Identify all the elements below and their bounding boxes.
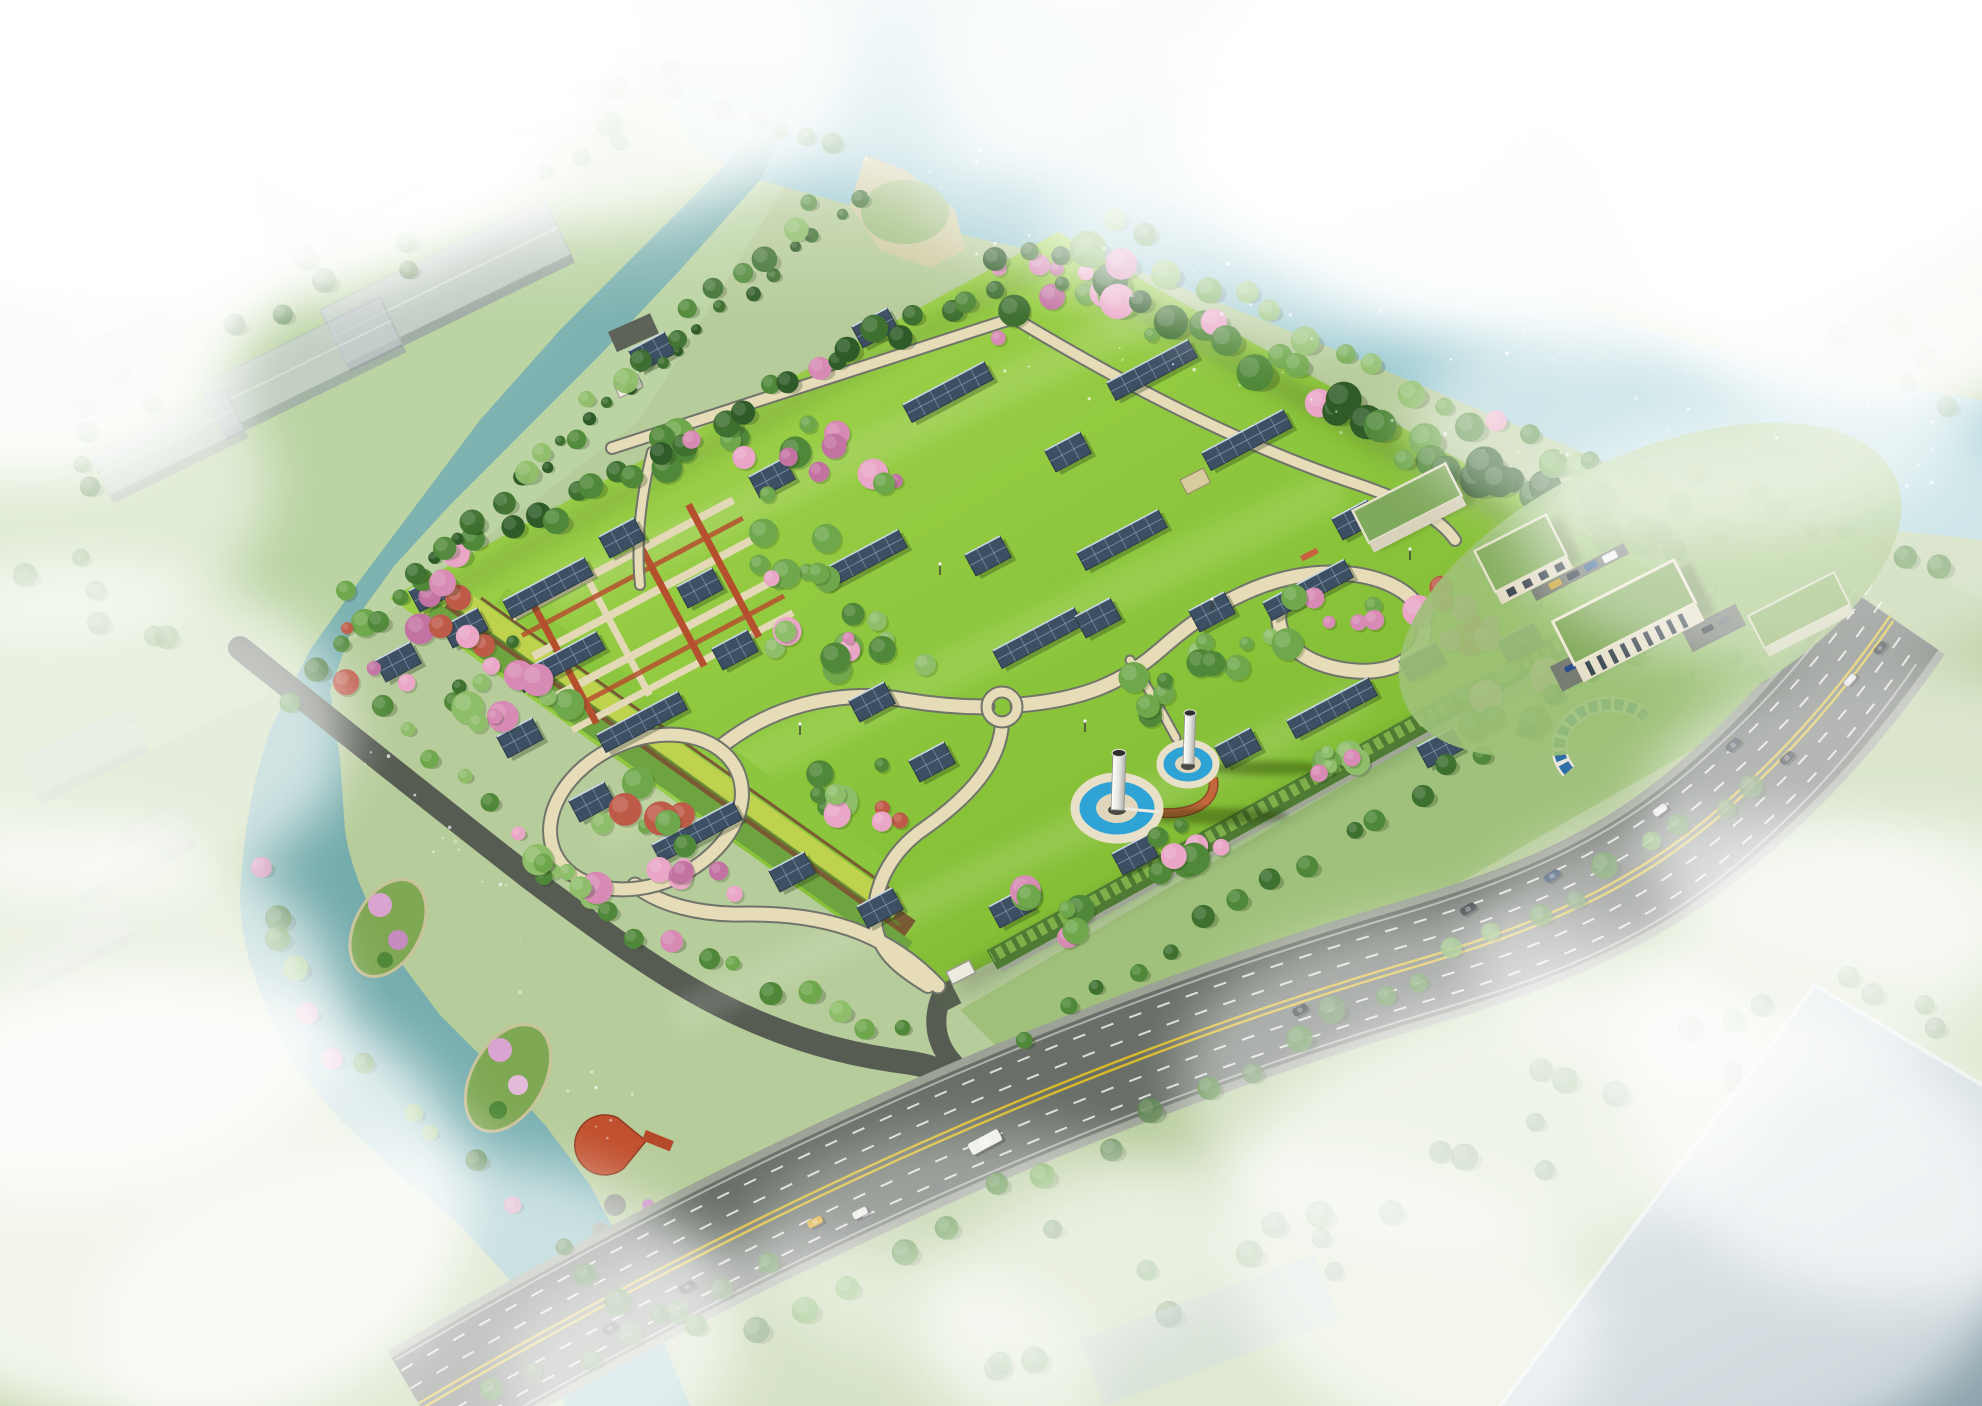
tree-highlight	[452, 534, 459, 541]
shrub-highlight	[368, 663, 375, 670]
shrub-highlight	[1146, 329, 1153, 336]
tree-highlight	[1017, 1033, 1026, 1042]
shrub-highlight	[408, 617, 423, 632]
shrub-highlight	[916, 656, 927, 667]
tree-highlight	[1228, 891, 1240, 903]
tree-highlight	[1437, 756, 1449, 768]
shrub-highlight	[761, 488, 769, 496]
sparkle	[590, 1070, 593, 1073]
tree-highlight	[543, 463, 549, 469]
island-flowers	[488, 1038, 512, 1062]
tree-highlight	[369, 613, 381, 625]
island-shrub	[377, 952, 393, 968]
sparkle	[1074, 367, 1076, 369]
shrub-highlight	[735, 448, 747, 460]
shrub-highlight	[593, 815, 604, 826]
sparkle	[520, 938, 521, 939]
sparkle	[1281, 371, 1284, 374]
tree-highlight	[651, 444, 664, 457]
shrub-highlight	[711, 863, 721, 873]
stack-mouth	[1184, 710, 1196, 716]
stack-mouth	[1112, 749, 1126, 756]
sparkle	[1003, 369, 1006, 372]
sparkle	[1028, 366, 1030, 368]
tree-highlight	[533, 444, 544, 455]
tree-highlight	[517, 462, 530, 475]
tree-highlight	[658, 358, 665, 365]
shrub-highlight	[815, 527, 830, 542]
shrub-highlight	[728, 887, 736, 895]
shrub-highlight	[557, 692, 572, 707]
tree-highlight	[407, 564, 419, 576]
shrub-highlight	[649, 860, 662, 873]
shrub-highlight	[470, 715, 480, 725]
scene-svg	[0, 0, 1982, 1406]
shrub-highlight	[453, 681, 460, 688]
sparkle	[505, 884, 508, 887]
tree-highlight	[622, 467, 635, 480]
tree-highlight	[1413, 786, 1425, 798]
tree-highlight	[733, 402, 746, 415]
shrub-highlight	[809, 763, 823, 777]
tree-highlight	[599, 903, 610, 914]
tree-highlight	[684, 432, 694, 442]
sparkle	[609, 1119, 612, 1122]
shrub-highlight	[561, 865, 569, 873]
tree-highlight	[580, 392, 589, 401]
tree-highlight	[422, 751, 432, 761]
shrub-highlight	[752, 521, 766, 535]
tree-highlight	[459, 770, 467, 778]
shrub-highlight	[751, 557, 761, 567]
shrub-highlight	[1227, 657, 1240, 670]
tree-highlight	[1286, 355, 1300, 369]
tree-highlight	[608, 463, 620, 475]
shrub-highlight	[765, 572, 773, 580]
shrub-highlight	[827, 786, 838, 797]
tree-highlight	[615, 370, 629, 384]
tree-highlight	[1362, 355, 1374, 367]
shrub-highlight	[508, 637, 514, 643]
sparkle	[448, 826, 452, 830]
pole-lamp	[1083, 719, 1086, 722]
shrub-highlight	[1065, 920, 1078, 933]
shrub-highlight	[674, 863, 685, 874]
sparkle	[364, 763, 366, 765]
shrub-highlight	[869, 613, 879, 623]
shrub-highlight	[524, 667, 540, 683]
sparkle	[1335, 411, 1337, 413]
island-shrub	[489, 1101, 507, 1119]
shrub-highlight	[1366, 598, 1375, 607]
sparkle	[594, 1086, 597, 1089]
sparkle	[454, 839, 458, 843]
tree-highlight	[1164, 946, 1173, 955]
tree-highlight	[1260, 870, 1272, 882]
shrub-highlight	[1150, 829, 1160, 839]
tree-highlight	[431, 571, 446, 586]
tree-highlight	[373, 697, 385, 709]
shrub-highlight	[766, 639, 776, 649]
tree-highlight	[394, 591, 403, 600]
fog-cloud	[1470, 810, 1982, 1090]
tree-highlight	[1366, 412, 1384, 430]
shrub-highlight	[338, 583, 348, 593]
tree-highlight	[836, 339, 850, 353]
shrub-highlight	[824, 436, 837, 449]
shrub-highlight	[612, 796, 628, 812]
sparkle	[458, 849, 460, 851]
sparkle	[1464, 343, 1466, 345]
sparkle	[442, 837, 444, 839]
tree-highlight	[482, 794, 492, 804]
shrub-highlight	[625, 770, 641, 786]
tree-highlight	[662, 932, 674, 944]
aerial-rendering-canvas	[0, 0, 1982, 1406]
tree-highlight	[334, 637, 343, 646]
sparkle	[1339, 431, 1342, 434]
tree-highlight	[461, 511, 475, 525]
shrub-highlight	[1198, 635, 1207, 644]
shrub-highlight	[1366, 612, 1376, 622]
shrub-highlight	[810, 565, 821, 576]
tree-highlight	[625, 930, 636, 941]
tree-highlight	[1239, 357, 1259, 377]
tree-highlight	[810, 358, 823, 371]
shrub-highlight	[844, 605, 855, 616]
tree-highlight	[1139, 1100, 1153, 1114]
sparkle	[481, 881, 483, 883]
shrub-highlight	[1322, 747, 1328, 753]
sparkle	[413, 794, 416, 797]
shrub-highlight	[354, 612, 368, 626]
sparkle	[1119, 347, 1121, 349]
tree-highlight	[1193, 907, 1206, 920]
shrub-highlight	[844, 633, 850, 639]
tree-highlight	[1395, 451, 1406, 462]
shrub-highlight	[474, 676, 483, 685]
shrub-highlight	[1060, 903, 1068, 911]
pole-lamp	[938, 562, 941, 565]
tree-highlight	[1365, 811, 1377, 823]
tree-highlight	[556, 436, 562, 442]
tower-stack	[1111, 752, 1126, 810]
shrub-highlight	[1312, 766, 1321, 775]
sparkle	[566, 1089, 570, 1093]
shrub-highlight	[875, 475, 886, 486]
shrub-highlight	[1264, 630, 1272, 638]
sparkle	[1088, 397, 1091, 400]
tree-highlight	[856, 1020, 867, 1031]
shrub-highlight	[1019, 887, 1031, 899]
tree-highlight	[528, 504, 542, 518]
tree-highlight	[715, 412, 730, 427]
tree-highlight	[1338, 346, 1349, 357]
shrub-highlight	[781, 449, 790, 458]
shrub-highlight	[823, 646, 838, 661]
tree-highlight	[545, 510, 559, 524]
pole-lamp	[1210, 597, 1213, 600]
tree-highlight	[831, 1002, 843, 1014]
shrub-highlight	[1159, 674, 1167, 682]
tree-highlight	[762, 376, 773, 387]
island-flowers	[508, 1075, 528, 1095]
pole-lamp	[798, 722, 801, 725]
sparkle	[1029, 336, 1032, 339]
sparkle	[432, 850, 434, 852]
tree-highlight	[602, 398, 608, 404]
shrub-highlight	[1175, 820, 1182, 827]
tree-highlight	[535, 855, 546, 866]
sparkle	[595, 1126, 597, 1128]
shrub-highlight	[894, 814, 902, 822]
island-flowers	[368, 893, 392, 917]
shrub-highlight	[1203, 653, 1216, 666]
shrub-highlight	[874, 813, 884, 823]
sparkle	[1192, 368, 1196, 372]
shrub-highlight	[455, 694, 471, 710]
shrub-highlight	[658, 812, 671, 825]
shrub-highlight	[676, 837, 687, 848]
shrub-highlight	[876, 759, 883, 766]
shrub-highlight	[1163, 846, 1176, 859]
sparkle	[518, 990, 522, 994]
tree-highlight	[701, 950, 713, 962]
tree-highlight	[896, 1021, 905, 1030]
tree-highlight	[1298, 857, 1310, 869]
shrub-highlight	[876, 802, 884, 810]
sparkle	[499, 883, 503, 887]
tree-highlight	[1400, 383, 1415, 398]
shrub-highlight	[992, 332, 999, 339]
shrub-highlight	[652, 428, 665, 441]
tree-highlight	[435, 538, 448, 551]
sparkle	[1310, 398, 1313, 401]
tree-highlight	[800, 982, 813, 995]
fog-cloud	[750, 1130, 1230, 1370]
tree-highlight	[1348, 823, 1357, 832]
sparkle	[606, 1137, 608, 1139]
shrub-highlight	[484, 659, 493, 668]
sparkle	[1390, 419, 1394, 423]
tree-highlight	[402, 723, 410, 731]
shrub-highlight	[507, 663, 522, 678]
shrub-highlight	[1352, 616, 1360, 624]
sparkle	[1121, 359, 1124, 362]
tree-highlight	[571, 878, 583, 890]
tree-highlight	[670, 331, 680, 341]
tree-highlight	[778, 373, 790, 385]
shrub-highlight	[812, 788, 820, 796]
sparkle	[370, 751, 372, 753]
tree-highlight	[1090, 981, 1098, 989]
sparkle	[1172, 363, 1174, 365]
tree-highlight	[890, 327, 904, 341]
shrub-highlight	[458, 627, 470, 639]
tree-highlight	[761, 984, 774, 997]
tree-highlight	[1062, 998, 1072, 1008]
shrub-highlight	[777, 623, 788, 634]
shrub-highlight	[342, 623, 348, 629]
shrub-highlight	[1138, 697, 1150, 709]
shrub-highlight	[1121, 665, 1136, 680]
shrub-highlight	[1214, 841, 1222, 849]
fog-cloud	[910, 100, 1350, 280]
shrub-highlight	[871, 639, 885, 653]
tree-highlight	[726, 957, 734, 965]
shrub-highlight	[1151, 863, 1163, 875]
tree-highlight	[495, 493, 508, 506]
shrub-highlight	[811, 464, 821, 474]
shrub-highlight	[1345, 751, 1354, 760]
tree-highlight	[1131, 965, 1141, 975]
shrub-highlight	[489, 710, 496, 717]
tree-highlight	[631, 351, 643, 363]
shrub-highlight	[1325, 760, 1332, 767]
shrub-highlight	[1241, 638, 1248, 645]
tree-highlight	[1307, 391, 1323, 407]
sparkle	[631, 1093, 634, 1096]
sparkle	[387, 754, 391, 758]
shrub-highlight	[431, 617, 443, 629]
tree-highlight	[503, 517, 516, 530]
pole-lamp	[1408, 547, 1411, 550]
tree-highlight	[1328, 384, 1348, 404]
shrub-highlight	[400, 676, 409, 685]
island-flowers	[388, 930, 408, 950]
shrub-highlight	[1324, 617, 1330, 623]
shrub-highlight	[1275, 631, 1291, 647]
tree-highlight	[512, 827, 520, 835]
tree-highlight	[692, 325, 698, 331]
shrub-highlight	[861, 462, 876, 477]
shrub-highlight	[1284, 587, 1297, 600]
tree-highlight	[580, 475, 594, 489]
sparkle	[1238, 384, 1240, 386]
tower-stack	[1183, 712, 1196, 764]
shrub-highlight	[801, 417, 810, 426]
tree-highlight	[584, 413, 591, 420]
tree-highlight	[568, 431, 579, 442]
tree-highlight	[1270, 346, 1283, 359]
